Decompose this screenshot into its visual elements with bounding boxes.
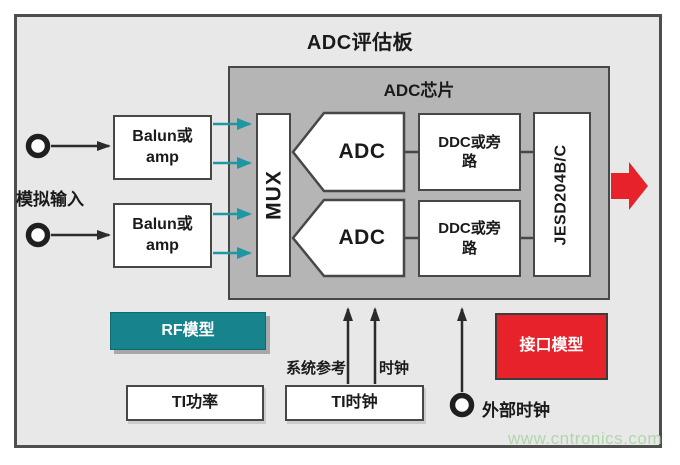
jesd-label: JESD204B/C bbox=[552, 144, 573, 245]
balun-amp-block-bottom: Balun或 amp bbox=[113, 203, 212, 268]
ti-power-block: TI功率 bbox=[126, 385, 264, 421]
ddc-bottom-line2: 路 bbox=[462, 239, 477, 259]
board-title: ADC评估板 bbox=[240, 26, 480, 55]
diagram-canvas: ADC评估板 ADC芯片 bbox=[0, 0, 680, 465]
adc-core-bottom-label: ADC bbox=[320, 200, 404, 276]
ddc-top-line1: DDC或旁 bbox=[438, 133, 501, 153]
adc-core-top-label: ADC bbox=[320, 113, 404, 191]
external-clock-label: 外部时钟 bbox=[482, 396, 550, 421]
watermark-text: www.cntronics.com bbox=[460, 429, 662, 449]
ddc-top-line2: 路 bbox=[462, 152, 477, 172]
jesd-block: JESD204B/C bbox=[533, 112, 591, 277]
mux-block: MUX bbox=[256, 113, 291, 277]
ddc-block-bottom: DDC或旁 路 bbox=[418, 200, 521, 277]
clock-label: 时钟 bbox=[379, 357, 409, 378]
balun-bottom-line2: amp bbox=[146, 236, 179, 257]
balun-top-line2: amp bbox=[146, 148, 179, 169]
rf-model-block: RF模型 bbox=[110, 312, 266, 350]
ddc-block-top: DDC或旁 路 bbox=[418, 113, 521, 191]
interface-model-block: 接口模型 bbox=[495, 313, 608, 380]
balun-amp-block-top: Balun或 amp bbox=[113, 115, 212, 180]
balun-top-line1: Balun或 bbox=[132, 127, 192, 148]
ti-clock-block: TI时钟 bbox=[285, 385, 424, 421]
mux-label: MUX bbox=[260, 170, 287, 220]
analog-input-label: 模拟输入 bbox=[16, 185, 84, 210]
chip-title: ADC芯片 bbox=[228, 76, 610, 101]
ddc-bottom-line1: DDC或旁 bbox=[438, 219, 501, 239]
sysref-label: 系统参考 bbox=[262, 357, 346, 378]
balun-bottom-line1: Balun或 bbox=[132, 215, 192, 236]
